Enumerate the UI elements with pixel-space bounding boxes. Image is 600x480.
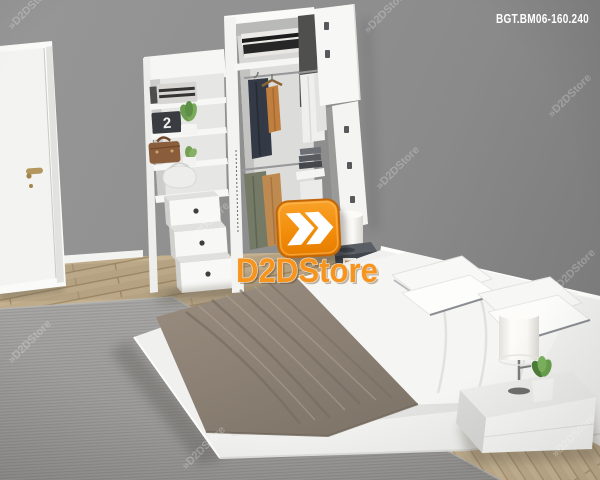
bedroom-render-image: 2 bbox=[0, 0, 600, 480]
product-code: BGT.BM06-160.240 bbox=[496, 11, 589, 26]
logo-text: D2DStore bbox=[236, 252, 378, 290]
logo-icon-tile bbox=[276, 199, 341, 258]
scene-canvas: 2 bbox=[0, 0, 600, 480]
